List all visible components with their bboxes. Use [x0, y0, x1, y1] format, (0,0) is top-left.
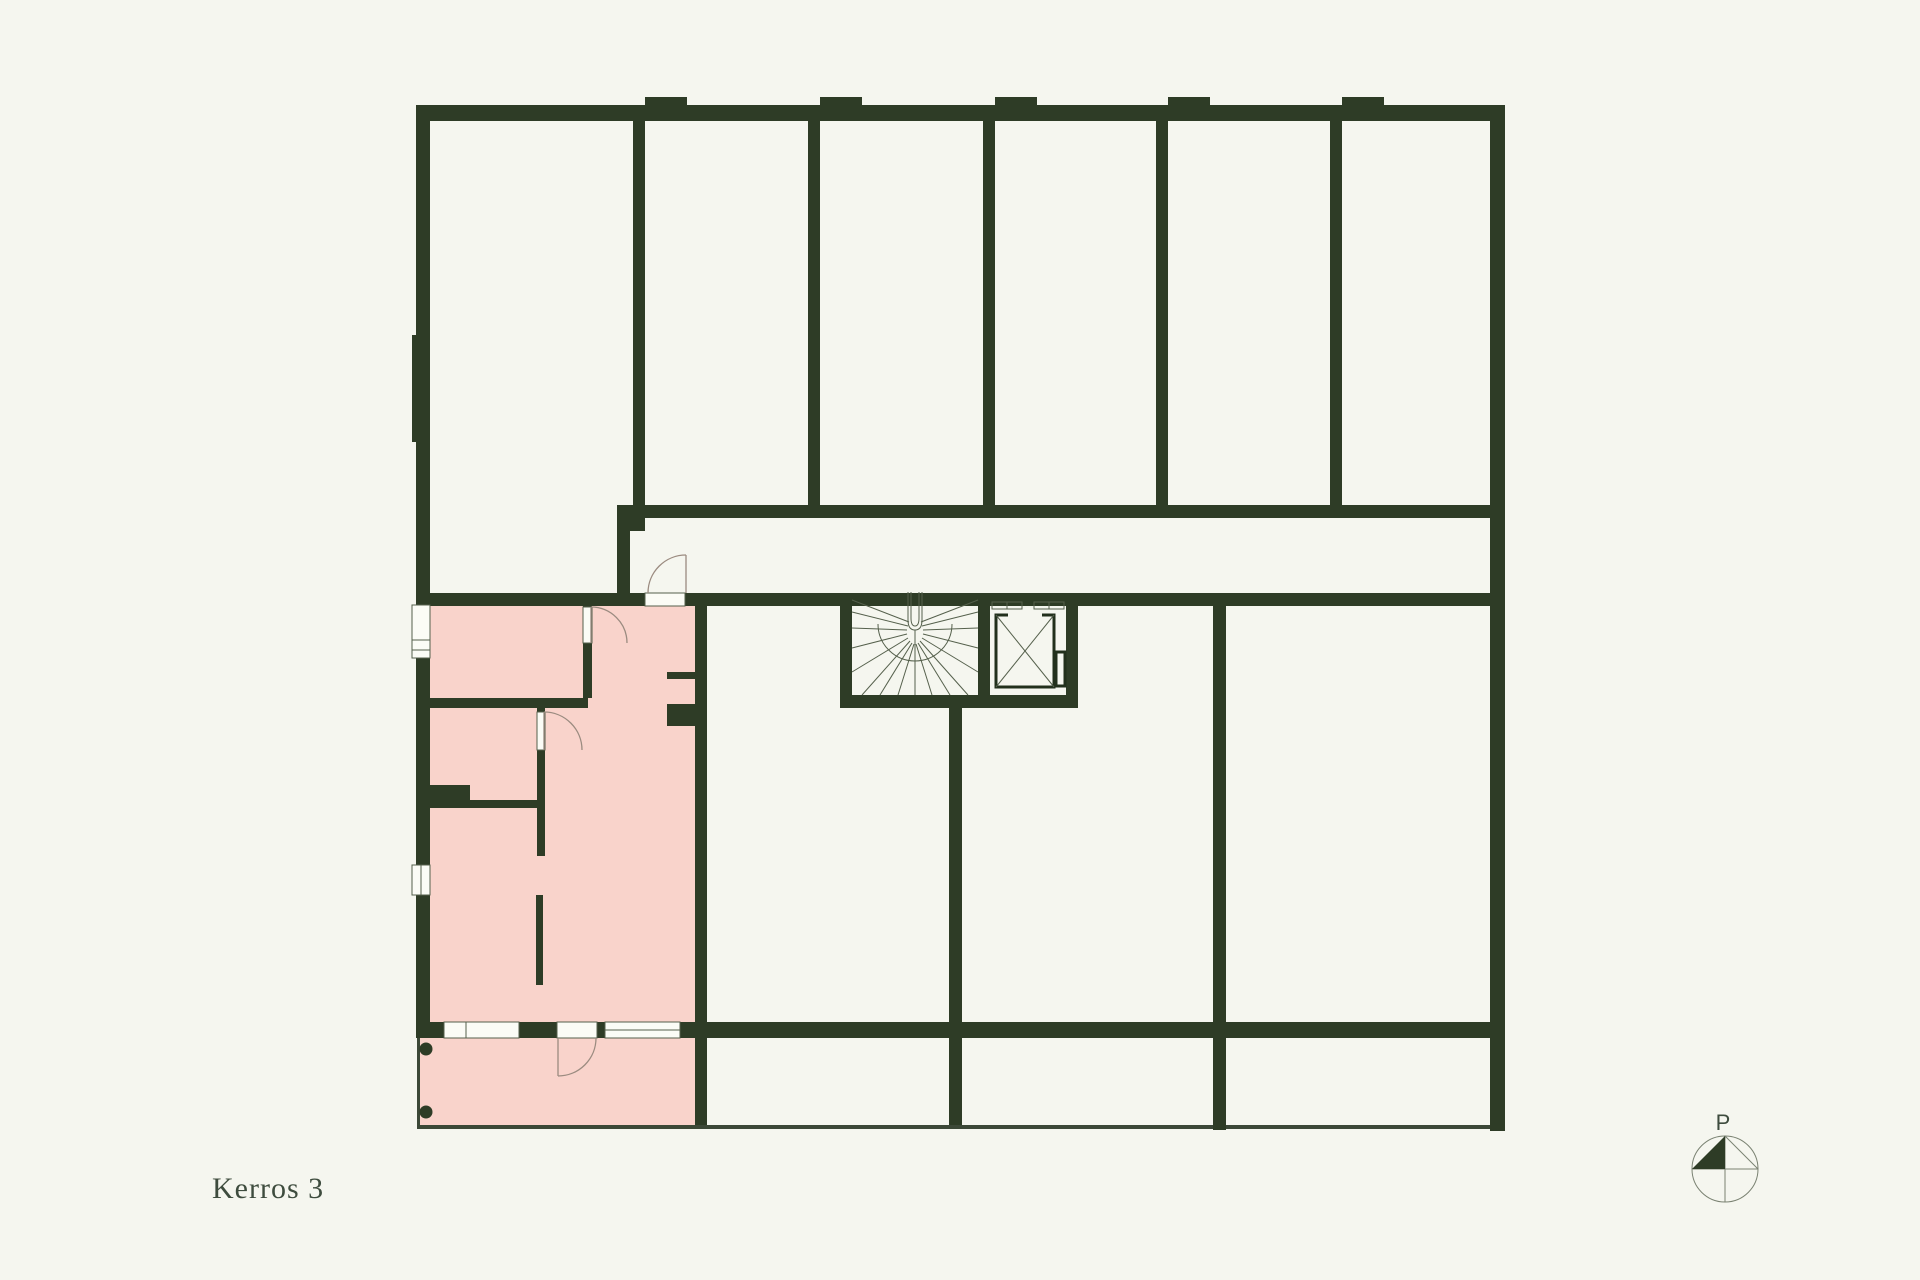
wall-segment — [416, 1022, 444, 1038]
window-icon — [444, 1022, 519, 1038]
entrance-door-icon — [648, 555, 686, 593]
compass-rose: P — [1692, 1110, 1758, 1202]
wall-segment — [840, 593, 1078, 606]
balcony-edge-line — [417, 1125, 1493, 1129]
wall-segment — [685, 593, 840, 606]
wall-segment — [430, 698, 588, 708]
apartment-balcony[interactable] — [419, 1038, 695, 1125]
top-wall-notch — [995, 97, 1037, 106]
top-wall-notch — [820, 97, 862, 106]
apartment-area[interactable] — [430, 606, 695, 1022]
highlighted-apartment[interactable] — [419, 606, 695, 1125]
compass-north-label: P — [1716, 1110, 1731, 1135]
wall-segment — [412, 335, 430, 442]
balcony-edge-line — [417, 1038, 420, 1129]
top-wall-notch — [645, 97, 687, 106]
wall-segment — [680, 1022, 1490, 1038]
wall-segment — [597, 1022, 605, 1038]
wall-segment — [840, 606, 852, 708]
top-wall-notch — [1342, 97, 1384, 106]
wall-segment — [428, 800, 545, 808]
wall-segment — [416, 121, 430, 1038]
wall-segment — [1078, 593, 1490, 606]
floor-label: Kerros 3 — [212, 1172, 324, 1206]
wall-segment — [617, 505, 1490, 518]
wall-segment — [1156, 121, 1168, 512]
wall-segment — [1330, 121, 1342, 512]
floor-plan: P — [0, 0, 1920, 1280]
wall-segment — [1213, 606, 1226, 1130]
wall-segment — [536, 895, 543, 985]
wall-segment — [949, 708, 962, 1125]
wall-segment — [978, 606, 990, 695]
elevator-icon — [992, 602, 1065, 687]
wall-segment — [630, 518, 645, 531]
top-wall-notch — [1168, 97, 1210, 106]
wall-segment — [617, 505, 630, 595]
stair-elevator-block-walls — [840, 606, 1078, 708]
wall-segment — [1066, 606, 1078, 708]
corridor-walls — [430, 593, 1490, 606]
top-room-walls — [617, 121, 1490, 595]
balcony-pillar-dot — [420, 1106, 433, 1119]
elevator-counterweight — [1056, 652, 1065, 686]
wall-segment — [430, 593, 645, 606]
floor-plan-page: P Kerros 3 — [0, 0, 1920, 1280]
wall-segment — [840, 695, 1078, 708]
balcony-door-sill — [557, 1022, 597, 1038]
wall-segment — [667, 704, 695, 726]
wall-segment — [1490, 121, 1505, 1131]
wall-segment — [667, 672, 695, 679]
wall-segment — [633, 121, 645, 512]
wall-segment — [808, 121, 820, 512]
spiral-stairs-icon — [852, 592, 978, 695]
balcony-pillar-dot — [420, 1043, 433, 1056]
wall-segment — [983, 121, 995, 512]
wall-segment — [695, 593, 707, 1125]
wall-segment — [519, 1022, 557, 1038]
wall-segment — [428, 785, 470, 800]
wall-segment — [416, 105, 1505, 121]
entrance-door-sill — [645, 593, 685, 606]
lower-room-walls — [949, 606, 1226, 1130]
